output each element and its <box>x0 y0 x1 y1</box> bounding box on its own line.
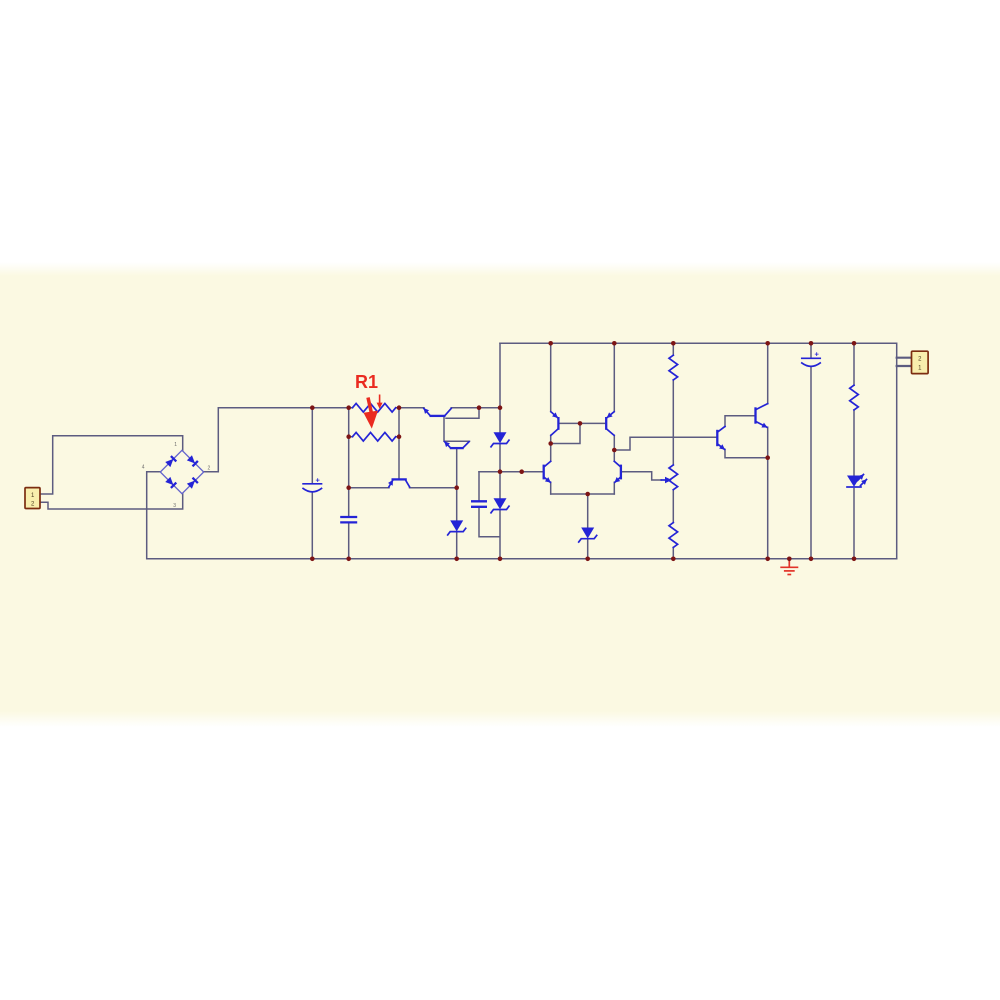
wire-q7-q8 <box>725 343 768 559</box>
c3-polarity-mark: + <box>815 350 820 359</box>
schematic-page: 1 2 1 2 3 4 + + <box>0 0 1000 1000</box>
bridge-outline <box>160 450 203 493</box>
wire-ac-input-bottom <box>40 494 183 510</box>
wire-rectified-rail-a <box>204 408 353 472</box>
sense-resistor-r1 <box>353 403 396 441</box>
diff-transistor-q5 <box>544 461 551 482</box>
input-connector: 1 2 <box>25 488 40 509</box>
r1-big-arrowhead <box>364 411 379 429</box>
pass-transistor-q2 <box>445 442 469 448</box>
bridge-pin-2-label: 2 <box>208 466 211 472</box>
wire-diff-emitters <box>551 494 615 559</box>
wire-error-out <box>614 437 716 450</box>
diff-transistor-q6 <box>614 461 621 482</box>
pass-transistor-q1 <box>424 408 451 416</box>
bridge-pin-3-label: 3 <box>173 503 176 509</box>
divider-resistor-top <box>669 355 678 380</box>
r1-label: R1 <box>355 372 378 392</box>
divider-potentiometer <box>661 465 677 490</box>
mirror-transistor-q4 <box>606 412 614 436</box>
wire-ground-rail <box>147 472 897 559</box>
indicator-led <box>847 475 867 488</box>
capacitor-c2 <box>340 517 357 522</box>
divider-resistor-bottom <box>669 523 678 548</box>
led-series-resistor <box>850 385 859 410</box>
wire-feedback-tap <box>621 472 661 480</box>
c1-polarity-mark: + <box>316 476 321 485</box>
wire-output-rail <box>500 343 897 559</box>
ground-symbol <box>780 559 798 575</box>
resistor-r1-parallel <box>353 432 396 441</box>
reference-capacitor <box>471 501 487 507</box>
led-emission-arrow <box>861 480 867 486</box>
bridge-pin-4-label: 4 <box>142 465 145 471</box>
output-connector: 2 1 <box>912 351 929 373</box>
bridge-rectifier: 1 2 3 4 <box>142 442 211 509</box>
driver-transistor-q7 <box>717 427 725 450</box>
current-limit-transistor <box>389 479 410 487</box>
wires <box>40 343 912 559</box>
r1-big-arrow-shaft <box>368 398 372 414</box>
wire-ref-chain <box>479 343 500 559</box>
wire-ac-input-top <box>40 436 183 494</box>
mirror-transistor-q3 <box>551 412 559 436</box>
output-transistor-q8 <box>756 404 768 428</box>
bridge-pin-1-label: 1 <box>174 442 177 448</box>
schematic-canvas: 1 2 1 2 3 4 + + <box>0 0 1000 1000</box>
wire-q1-q2-link <box>444 416 470 441</box>
r1-annotation: R1 <box>355 372 383 429</box>
wire-output-stubs <box>897 358 912 366</box>
